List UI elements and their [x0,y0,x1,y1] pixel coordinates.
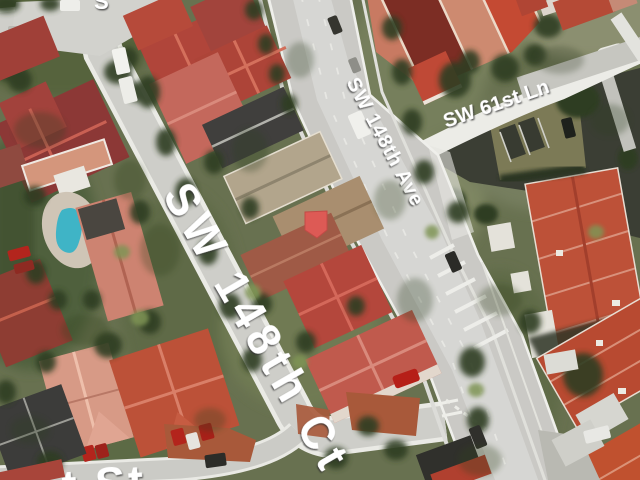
svg-text:S: S [94,0,109,14]
